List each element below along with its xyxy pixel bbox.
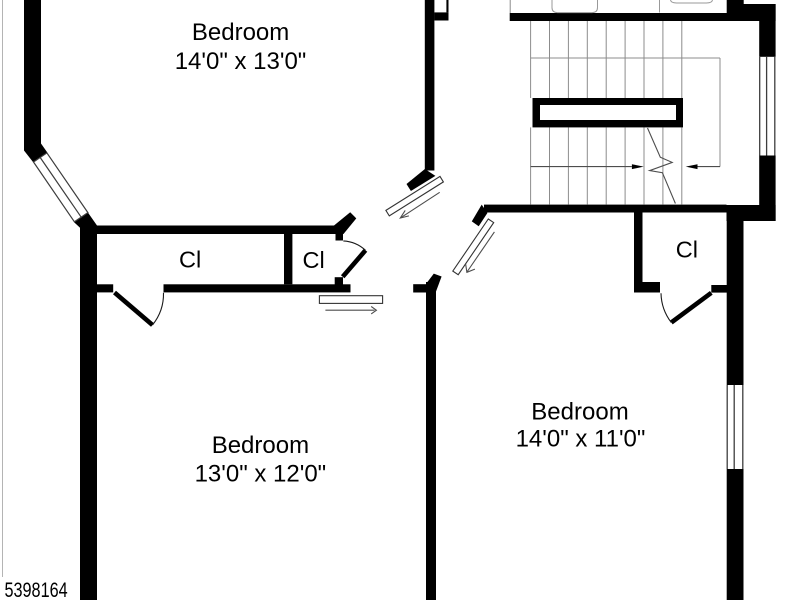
- svg-text:13'0" x 12'0": 13'0" x 12'0": [195, 461, 327, 488]
- svg-text:5398164: 5398164: [5, 578, 68, 600]
- svg-text:Cl: Cl: [303, 247, 325, 273]
- svg-text:Bedroom: Bedroom: [212, 432, 309, 459]
- svg-text:Bedroom: Bedroom: [531, 398, 628, 425]
- svg-text:Cl: Cl: [179, 247, 201, 273]
- svg-text:14'0" x 11'0": 14'0" x 11'0": [516, 425, 646, 452]
- svg-text:14'0" x 13'0": 14'0" x 13'0": [175, 48, 307, 75]
- svg-text:Bedroom: Bedroom: [192, 19, 289, 46]
- svg-text:Cl: Cl: [676, 236, 698, 262]
